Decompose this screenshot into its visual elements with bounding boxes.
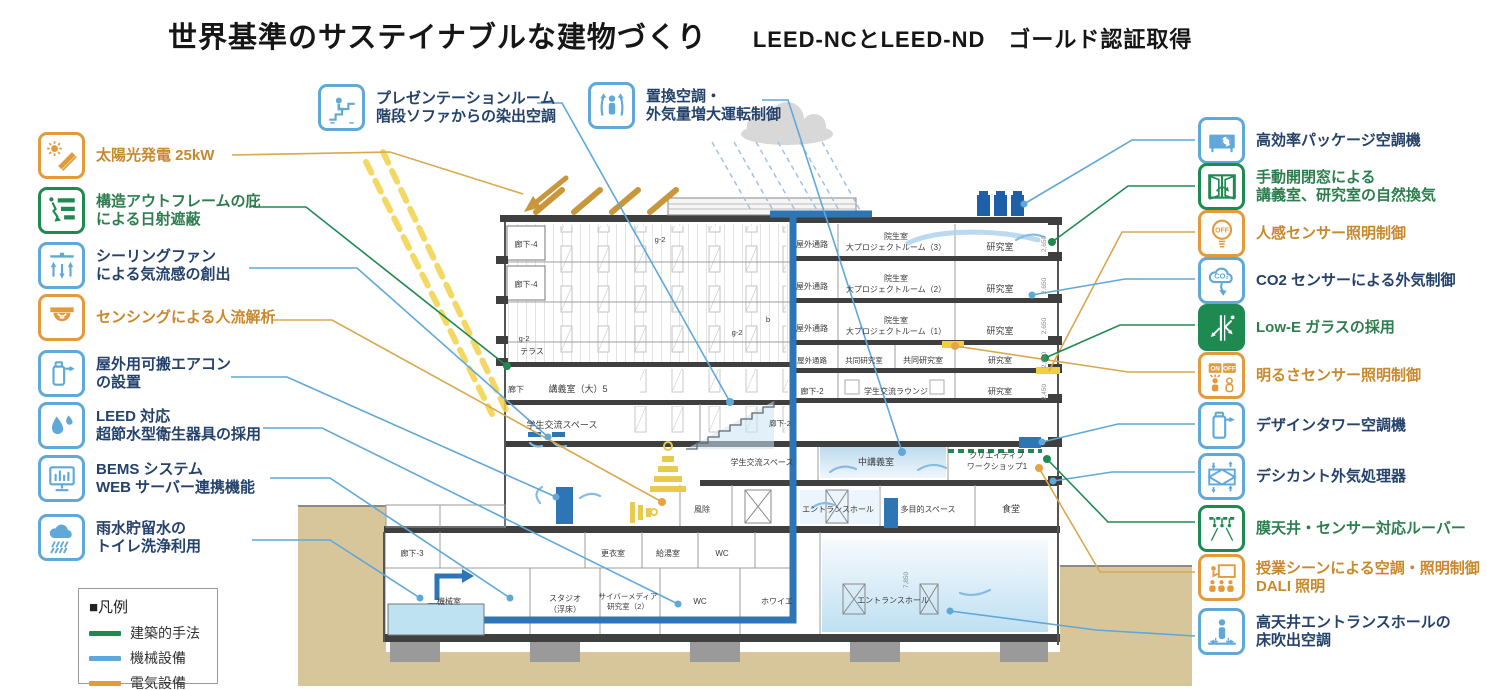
- displacement-vent-icon: [588, 82, 635, 129]
- svg-text:食堂: 食堂: [1002, 503, 1020, 514]
- eaves-shading-icon: [38, 187, 85, 234]
- svg-text:廊下-2: 廊下-2: [769, 418, 791, 428]
- svg-text:2,650: 2,650: [1041, 317, 1048, 334]
- solar-panels: [536, 190, 676, 212]
- feature-co2-control: CO₂ CO2 センサーによる外気制御: [1198, 257, 1456, 304]
- feature-label: プレゼンテーションルーム: [376, 90, 556, 108]
- svg-text:給湯室: 給湯室: [656, 548, 680, 558]
- portable-ac-icon: [38, 350, 85, 397]
- svg-text:g-2: g-2: [732, 328, 743, 337]
- dali-lighting-icon: [1198, 554, 1245, 601]
- svg-text:屋外通路: 屋外通路: [796, 323, 828, 333]
- hatched-boxes: [745, 490, 938, 614]
- svg-text:廊下-2: 廊下-2: [800, 386, 824, 396]
- rooftop-ac-units: [977, 191, 1024, 216]
- package-ac-icon: [1198, 117, 1245, 164]
- svg-text:2,650: 2,650: [1041, 235, 1048, 252]
- solar-panel-icon: [38, 132, 85, 179]
- svg-text:エントランスホール: エントランスホール: [857, 596, 929, 605]
- design-tower-unit: [1019, 437, 1041, 448]
- legend-item-architectural: 建築的手法: [89, 623, 207, 643]
- room-labels: 廊下-4 廊下-4 g-2 テラス g-2 g-2 b 廊下 講義室（大）5 学…: [400, 231, 1027, 614]
- foundation-piers: [390, 642, 1048, 662]
- svg-text:院生室: 院生室: [884, 231, 908, 241]
- brightness-sensor-icon: ON OFF: [1198, 352, 1245, 399]
- svg-text:研究室: 研究室: [986, 283, 1013, 294]
- svg-text:エントランスホール: エントランスホール: [802, 505, 874, 514]
- svg-text:大プロジェクトルーム（2）: 大プロジェクトルーム（2）: [846, 284, 946, 294]
- feature-portable-ac: 屋外用可搬エアコンの設置: [38, 350, 231, 397]
- svg-text:講義室（大）5: 講義室（大）5: [548, 383, 607, 394]
- bems-monitor-icon: [38, 455, 85, 502]
- svg-text:クリエイティブ: クリエイティブ: [969, 450, 1024, 460]
- feature-eaves-shading: 構造アウトフレームの庇による日射遮蔽: [38, 187, 261, 234]
- feature-ceiling-fan: シーリングファンによる気流感の創出: [38, 242, 231, 289]
- svg-text:廊下: 廊下: [508, 384, 524, 394]
- svg-text:ワークショップ1: ワークショップ1: [967, 462, 1028, 471]
- feature-floor-supply: 高天井エントランスホールの床吹出空調: [1198, 608, 1451, 655]
- feature-low-e-glass: Low-E ガラスの採用: [1198, 304, 1395, 351]
- sensor-dome-icon: [38, 294, 85, 341]
- motion-sensor-bulb-icon: OFF: [1198, 210, 1245, 257]
- svg-text:2,650: 2,650: [1041, 277, 1048, 294]
- svg-text:廊下-3: 廊下-3: [400, 548, 424, 558]
- legend-title: ■凡例: [89, 596, 207, 617]
- svg-text:ON: ON: [1210, 365, 1220, 372]
- svg-text:WC: WC: [693, 597, 707, 606]
- connector-dots: [417, 201, 1057, 615]
- co2-sensor-icon: CO₂: [1198, 257, 1245, 304]
- ceiling-fan-icon: [38, 242, 85, 289]
- svg-text:研究室: 研究室: [986, 241, 1013, 252]
- dimension-labels: 2,650 2,650 2,650 2,650 2,450 7,850: [903, 235, 1048, 588]
- svg-text:大プロジェクトルーム（3）: 大プロジェクトルーム（3）: [846, 242, 946, 252]
- svg-text:2,450: 2,450: [1041, 383, 1048, 400]
- svg-text:機械室: 機械室: [437, 596, 461, 606]
- slide: { "title": { "main": "世界基準のサステイナブルな建物づくり…: [0, 0, 1487, 690]
- feature-stair-sofa: プレゼンテーションルーム階段ソファからの染出空調: [318, 84, 556, 131]
- design-tower-icon: [1198, 402, 1245, 449]
- design-tower-unit-hall: [884, 498, 898, 528]
- feature-displacement-vent: 置換空調・外気量増大運転制御: [588, 82, 781, 129]
- legend-item-mechanical: 機械設備: [89, 648, 207, 668]
- sun-arrow: [524, 178, 566, 212]
- svg-text:OFF: OFF: [1215, 227, 1229, 234]
- stair-sofa-icon: [318, 84, 365, 131]
- svg-text:院生室: 院生室: [884, 315, 908, 325]
- sun-rays: [366, 152, 506, 414]
- feature-bems: BEMS システムWEB サーバー連携機能: [38, 455, 255, 502]
- portable-ac-unit: [556, 487, 573, 524]
- legend-swatch-orange: [89, 681, 121, 686]
- svg-text:WC: WC: [715, 549, 729, 558]
- svg-text:学生交流スペース: 学生交流スペース: [730, 457, 793, 467]
- page-title: 世界基準のサステイナブルな建物づくり: [168, 22, 707, 54]
- svg-text:廊下-4: 廊下-4: [514, 239, 538, 249]
- svg-text:CO₂: CO₂: [1214, 271, 1228, 280]
- svg-text:屋外通路: 屋外通路: [797, 355, 827, 365]
- svg-text:学生交流ラウンジ: 学生交流ラウンジ: [864, 386, 928, 396]
- feature-water-saving: LEED 対応超節水型衛生器具の採用: [38, 402, 261, 449]
- legend-swatch-blue: [89, 656, 121, 661]
- svg-text:共同研究室: 共同研究室: [845, 355, 883, 365]
- svg-text:院生室: 院生室: [884, 273, 908, 283]
- desiccant-icon: [1198, 453, 1245, 500]
- svg-text:屋外通路: 屋外通路: [796, 281, 828, 291]
- legend-swatch-green: [89, 631, 121, 636]
- feature-rainwater: 雨水貯留水のトイレ洗浄利用: [38, 514, 201, 561]
- svg-text:g-2: g-2: [655, 235, 666, 244]
- svg-text:大プロジェクトルーム（1）: 大プロジェクトルーム（1）: [846, 326, 946, 336]
- feature-solar: 太陽光発電 25kW: [38, 132, 214, 179]
- rainwater-pipe: [428, 214, 872, 634]
- svg-text:研究室: 研究室: [988, 386, 1012, 396]
- svg-text:研究室: 研究室: [988, 355, 1012, 365]
- svg-text:更衣室: 更衣室: [601, 548, 625, 558]
- svg-text:共同研究室: 共同研究室: [903, 355, 943, 365]
- svg-text:7,850: 7,850: [903, 571, 910, 588]
- svg-text:多目的スペース: 多目的スペース: [900, 504, 955, 514]
- lighting-sensor-strips: [942, 341, 1060, 374]
- legend: ■凡例 建築的手法 機械設備 電気設備: [78, 588, 218, 684]
- svg-text:屋外通路: 屋外通路: [796, 239, 828, 249]
- building-structure: [384, 198, 1062, 645]
- svg-text:研究室: 研究室: [986, 325, 1013, 336]
- svg-text:研究室（2）: 研究室（2）: [607, 601, 649, 611]
- air-conditioned-zones: [686, 232, 1048, 632]
- svg-text:b: b: [766, 315, 770, 324]
- svg-text:中講義室: 中講義室: [858, 456, 894, 467]
- feature-sensing: センシングによる人流解析: [38, 294, 276, 341]
- floor-supply-icon: [1198, 608, 1245, 655]
- svg-text:サイバーメディア: サイバーメディア: [598, 591, 657, 601]
- feature-membrane-ceiling: 膜天井・センサー対応ルーバー: [1198, 505, 1466, 552]
- people-flow-sensors: [630, 442, 686, 523]
- rain-cloud-icon: [38, 514, 85, 561]
- svg-text:学生交流スペース: 学生交流スペース: [527, 419, 598, 430]
- feature-package-ac: 高効率パッケージ空調機: [1198, 117, 1421, 164]
- feature-manual-window: 手動開閉窓による講義室、研究室の自然換気: [1198, 163, 1436, 210]
- window-vent-icon: [1198, 163, 1245, 210]
- svg-text:（浮床）: （浮床）: [549, 604, 581, 614]
- svg-text:スタジオ: スタジオ: [549, 594, 581, 603]
- legend-item-electrical: 電気設備: [89, 673, 207, 690]
- svg-text:2,650: 2,650: [1041, 351, 1048, 368]
- feature-desiccant: デシカント外気処理器: [1198, 453, 1406, 500]
- feature-brightness-lighting: ON OFF 明るさセンサー照明制御: [1198, 352, 1421, 399]
- feature-dali-lighting: 授業シーンによる空調・照明制御DALI 照明: [1198, 554, 1480, 601]
- ground: [298, 506, 1192, 686]
- airflow-arrows: [530, 235, 1044, 595]
- ceiling-fans: [528, 432, 565, 437]
- page-subtitle: LEED-NCとLEED-ND ゴールド認証取得: [753, 27, 1193, 52]
- rainwater-tank: [388, 604, 484, 635]
- grand-stair: [686, 401, 774, 449]
- svg-text:テラス: テラス: [520, 347, 544, 356]
- water-drop-icon: [38, 402, 85, 449]
- feature-occupancy-lighting: OFF 人感センサー照明制御: [1198, 210, 1406, 257]
- svg-text:風除: 風除: [694, 504, 710, 514]
- connector-lines: [231, 100, 1195, 636]
- titlebar: 世界基準のサステイナブルな建物づくりLEED-NCとLEED-ND ゴールド認証…: [168, 14, 1192, 56]
- low-e-glass-icon: [1198, 304, 1245, 351]
- svg-text:OFF: OFF: [1223, 365, 1236, 372]
- membrane-ceiling-icon: [1198, 505, 1245, 552]
- feature-design-tower: デザインタワー空調機: [1198, 402, 1406, 449]
- svg-text:ホワイエ: ホワイエ: [761, 597, 793, 606]
- svg-text:g-2: g-2: [519, 334, 530, 343]
- svg-text:廊下-4: 廊下-4: [514, 279, 538, 289]
- rain-lines: [712, 142, 860, 212]
